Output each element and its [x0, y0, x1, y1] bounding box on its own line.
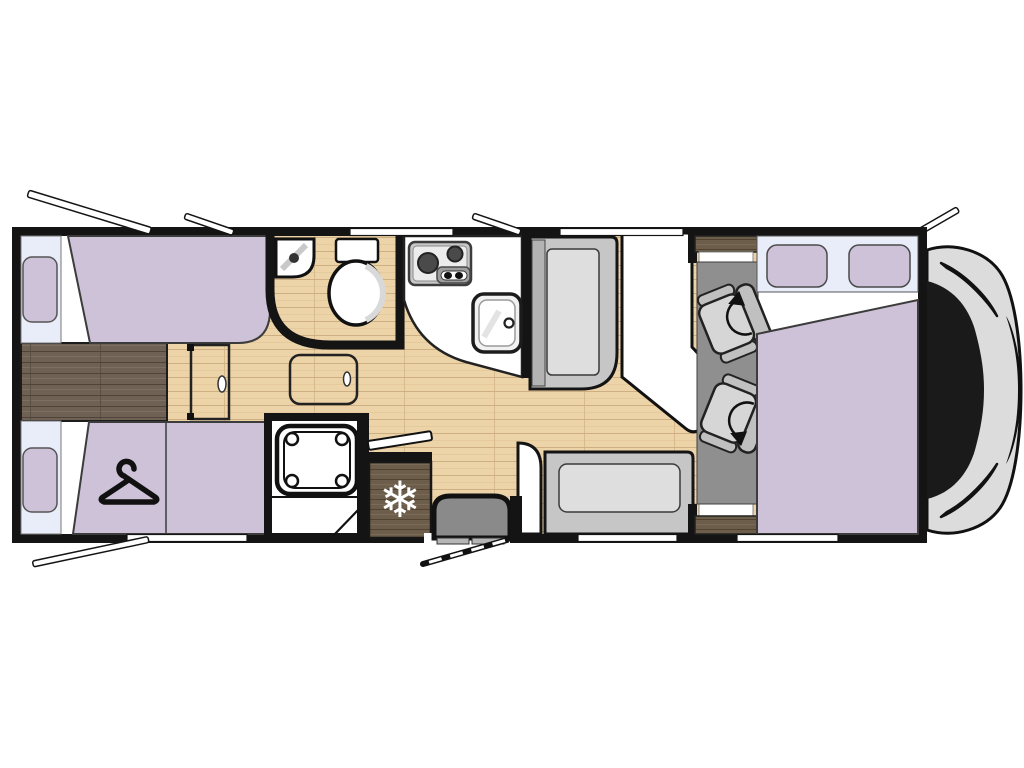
- overhead-cabinet-top: [695, 236, 758, 252]
- shower: [268, 417, 365, 537]
- pillow-cab-left: [767, 245, 827, 287]
- twin-bed-upper: [68, 236, 270, 343]
- pillow-lower: [23, 448, 57, 512]
- toilet: [329, 239, 383, 325]
- pillow-upper: [23, 257, 57, 322]
- twin-bed-lower: [73, 422, 272, 534]
- wall-window: [560, 229, 683, 236]
- door-handle: [344, 372, 351, 386]
- burner-large: [418, 253, 438, 273]
- overhead-cabinet-bottom: [695, 516, 758, 534]
- entry-step: [434, 496, 510, 538]
- step-handle: [218, 376, 226, 392]
- wall-window: [737, 535, 838, 542]
- walkway-dark-floor: [21, 343, 167, 421]
- basin-drain: [289, 253, 299, 263]
- fridge-wall-left: [357, 417, 369, 543]
- bench-rear-cushion: [559, 464, 680, 512]
- vehicle-nose: [918, 207, 1022, 533]
- overcab-bed: [757, 236, 918, 534]
- two-burner-hob: [409, 242, 471, 285]
- burner-small: [448, 247, 463, 262]
- pillow-cab-right: [849, 245, 910, 287]
- bench-side-cushion: [547, 249, 599, 375]
- corner-washbasin: [276, 239, 314, 277]
- kitchen-sink: [473, 294, 521, 352]
- snowflake-icon: ❄: [379, 471, 421, 529]
- wall-window: [578, 535, 677, 542]
- bedroom-step: [187, 344, 229, 420]
- sink-faucet: [505, 319, 514, 328]
- wall-stub-entry: [510, 496, 522, 543]
- entry: [423, 496, 512, 564]
- fridge-unit: ❄: [357, 417, 432, 543]
- floorplan-stage: ❄: [0, 0, 1024, 768]
- wall-window: [350, 229, 453, 236]
- double-bed: [757, 300, 918, 534]
- motorhome-floorplan: ❄: [0, 0, 1024, 768]
